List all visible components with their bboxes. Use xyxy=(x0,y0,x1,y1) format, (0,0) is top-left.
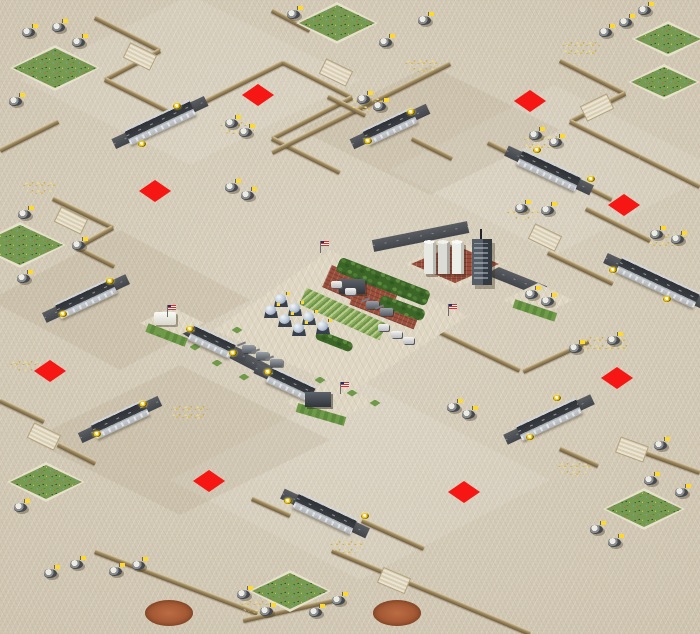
flower-patch-inner xyxy=(10,465,82,499)
flower-patch-inner xyxy=(635,24,700,54)
civilian-car[interactable] xyxy=(403,337,414,344)
oil-derrick-unit[interactable] xyxy=(548,134,567,148)
cliff-edge xyxy=(0,398,45,424)
street-light-icon xyxy=(173,103,181,109)
oil-derrick-unit[interactable] xyxy=(653,437,672,451)
game-map[interactable] xyxy=(0,0,700,634)
dirt-circle xyxy=(373,600,421,626)
us-flag-icon xyxy=(320,241,330,253)
oil-derrick-unit[interactable] xyxy=(71,237,90,251)
street-light-icon xyxy=(526,434,534,440)
dark-building[interactable] xyxy=(305,392,331,407)
yellow-flag-icon xyxy=(286,292,290,295)
street-light-icon xyxy=(533,147,541,153)
spawn-marker[interactable] xyxy=(139,180,171,202)
cliff-edge xyxy=(331,548,531,634)
oil-derrick-unit[interactable] xyxy=(528,127,547,141)
street-light-icon xyxy=(587,176,595,182)
civilian-car[interactable] xyxy=(391,331,402,338)
yellow-flag-icon xyxy=(300,301,304,304)
oil-derrick-unit[interactable] xyxy=(378,34,397,48)
oil-derrick-unit[interactable] xyxy=(637,2,656,16)
oil-derrick-unit[interactable] xyxy=(674,484,693,498)
oil-derrick-unit[interactable] xyxy=(236,586,255,600)
dirt-circle xyxy=(145,600,193,626)
oil-derrick-unit[interactable] xyxy=(308,604,327,618)
oil-derrick-unit[interactable] xyxy=(618,14,637,28)
ore-patch xyxy=(170,404,210,420)
oil-derrick-unit[interactable] xyxy=(589,521,608,535)
street-light-icon xyxy=(93,431,101,437)
oil-derrick-unit[interactable] xyxy=(598,24,617,38)
oil-derrick-unit[interactable] xyxy=(131,557,150,571)
ore-patch xyxy=(558,461,592,475)
grass-square xyxy=(212,360,223,367)
oil-derrick-unit[interactable] xyxy=(331,592,350,606)
yellow-flag-icon xyxy=(290,312,294,315)
us-flag-icon xyxy=(167,305,177,317)
oil-derrick-unit[interactable] xyxy=(21,24,40,38)
cliff-edge xyxy=(436,328,521,372)
street-light-icon xyxy=(361,513,369,519)
street-light-icon xyxy=(264,369,272,375)
civilian-car[interactable] xyxy=(331,281,342,288)
oil-derrick-unit[interactable] xyxy=(670,231,689,245)
street-light-icon xyxy=(59,311,67,317)
oil-derrick-unit[interactable] xyxy=(372,98,391,112)
cliff-ramp xyxy=(615,436,649,462)
flower-patch xyxy=(628,64,700,100)
artillery-unit[interactable] xyxy=(380,308,393,316)
oil-derrick-unit[interactable] xyxy=(240,187,259,201)
street-light-icon xyxy=(284,498,292,504)
flower-patch xyxy=(7,462,85,502)
civilian-car[interactable] xyxy=(345,288,356,295)
oil-derrick-unit[interactable] xyxy=(606,332,625,346)
bridge[interactable] xyxy=(515,397,582,440)
oil-derrick-unit[interactable] xyxy=(71,34,90,48)
cliff-edge xyxy=(547,250,614,286)
oil-derrick-unit[interactable] xyxy=(8,93,27,107)
yellow-flag-icon xyxy=(304,321,308,324)
civilian-car[interactable] xyxy=(378,324,389,331)
yellow-flag-icon xyxy=(314,310,318,313)
artillery-unit[interactable] xyxy=(270,359,283,367)
spawn-marker[interactable] xyxy=(601,367,633,389)
oil-derrick-unit[interactable] xyxy=(417,12,436,26)
street-light-icon xyxy=(139,401,147,407)
flower-patch-inner xyxy=(606,491,682,527)
oil-derrick-unit[interactable] xyxy=(540,202,559,216)
street-light-icon xyxy=(663,296,671,302)
ore-patch xyxy=(23,180,57,194)
street-light-icon xyxy=(138,141,146,147)
street-light-icon xyxy=(186,326,194,332)
oil-derrick-unit[interactable] xyxy=(540,293,559,307)
oil-derrick-unit[interactable] xyxy=(643,472,662,486)
cliff-edge xyxy=(0,119,59,152)
us-flag-icon xyxy=(340,382,350,394)
oil-derrick-unit[interactable] xyxy=(568,340,587,354)
street-light-icon xyxy=(553,395,561,401)
street-light-icon xyxy=(229,350,237,356)
silo-cluster[interactable] xyxy=(424,242,468,274)
oil-derrick-unit[interactable] xyxy=(607,534,626,548)
street-light-icon xyxy=(407,109,415,115)
oil-derrick-unit[interactable] xyxy=(17,206,36,220)
oil-derrick-unit[interactable] xyxy=(259,603,278,617)
yellow-flag-icon xyxy=(276,303,280,306)
cliff-ramp xyxy=(377,567,411,594)
flower-patch xyxy=(296,2,378,44)
street-light-icon xyxy=(106,278,114,284)
street-light-icon xyxy=(609,267,617,273)
ore-patch xyxy=(330,539,366,553)
oil-derrick-unit[interactable] xyxy=(16,270,35,284)
ore-patch xyxy=(405,58,439,72)
flower-patch xyxy=(632,21,700,57)
oil-derrick-unit[interactable] xyxy=(108,563,127,577)
oil-derrick-unit[interactable] xyxy=(69,556,88,570)
oil-derrick-unit[interactable] xyxy=(238,124,257,138)
oil-derrick-unit[interactable] xyxy=(649,226,668,240)
bridge[interactable] xyxy=(615,256,700,308)
oil-derrick-unit[interactable] xyxy=(286,6,305,20)
flower-patch-inner xyxy=(0,225,63,265)
oil-derrick-unit[interactable] xyxy=(514,200,533,214)
street-light-icon xyxy=(364,138,372,144)
ore-patch xyxy=(562,40,602,56)
grass-square xyxy=(239,374,250,381)
oil-derrick-unit[interactable] xyxy=(13,499,32,513)
dome-building[interactable] xyxy=(291,323,307,337)
yellow-flag-icon xyxy=(328,319,332,322)
us-flag-icon xyxy=(448,304,458,316)
ore-patch xyxy=(10,359,40,372)
oil-derrick-unit[interactable] xyxy=(461,406,480,420)
flower-patch xyxy=(0,222,66,268)
dome-building[interactable] xyxy=(315,321,331,335)
tech-tower[interactable] xyxy=(472,239,492,285)
cliff-edge xyxy=(559,58,626,95)
oil-derrick-unit[interactable] xyxy=(43,565,62,579)
flower-patch-inner xyxy=(299,5,375,41)
flower-patch-inner xyxy=(631,67,697,97)
oil-derrick-unit[interactable] xyxy=(51,19,70,33)
